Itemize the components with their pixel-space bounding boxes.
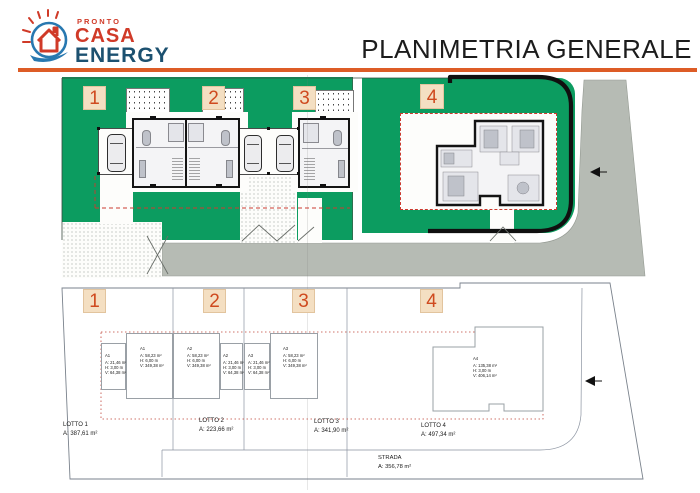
unit-volume: V: 349,38 m² <box>283 363 307 368</box>
lot-area: A: 387,61 m² <box>63 431 97 437</box>
lot-name: LOTTO 4 <box>421 423 446 429</box>
lot-label-3: LOTTO 3 A: 341,90 m² <box>314 418 348 435</box>
lot-area: A: 497,34 m² <box>421 432 455 438</box>
unit-height: H: 3,00 m <box>248 365 266 370</box>
unit-height: H: 3,00 m <box>473 368 491 373</box>
unit-volume: V: 349,38 m² <box>140 363 164 368</box>
unit-box-a1-large: A1 A: 58,23 m² H: 6,00 m V: 349,38 m² <box>126 333 173 399</box>
lot-name: LOTTO 3 <box>314 419 339 425</box>
lot-area: A: 223,66 m² <box>199 427 233 433</box>
lot-name: LOTTO 2 <box>199 418 224 424</box>
unit-box-a2-large: A2 A: 58,23 m² H: 6,00 m V: 349,38 m² <box>173 333 220 399</box>
unit-area: A: 58,23 m² <box>140 353 162 358</box>
site-lot-badge-1: 1 <box>83 86 106 110</box>
lot-name: LOTTO 1 <box>63 422 88 428</box>
unit-id: A4 <box>473 356 497 361</box>
road-label: STRADA A: 356,78 m² <box>378 454 411 471</box>
plan-document: PRONTO CASA ENERGY PLANIMETRIA GENERALE <box>0 0 700 493</box>
unit-box-a3-large: A3 A: 58,23 m² H: 6,00 m V: 349,38 m² <box>270 333 318 399</box>
unit-area: A: 58,23 m² <box>187 353 209 358</box>
unit-height: H: 3,00 m <box>105 365 123 370</box>
unit-volume: V: 64,38 m² <box>223 370 245 375</box>
unit-box-a4-text: A4 A: 135,38 m² H: 3,00 m V: 406,14 m² <box>473 356 497 379</box>
scheme-lot-badge-2: 2 <box>203 289 226 313</box>
unit-id: A2 <box>223 353 242 358</box>
lot-label-4: LOTTO 4 A: 497,34 m² <box>421 422 455 439</box>
unit-box-a1-small: A1 A: 21,46 m² H: 3,00 m V: 64,38 m² <box>101 343 126 390</box>
lot-area: A: 341,90 m² <box>314 428 348 434</box>
unit-id: A3 <box>248 353 269 358</box>
unit-area: A: 135,38 m² <box>473 363 497 368</box>
unit-height: H: 6,00 m <box>187 358 205 363</box>
unit-volume: V: 64,38 m² <box>105 370 127 375</box>
unit-id: A3 <box>283 346 317 351</box>
unit-id: A1 <box>140 346 172 351</box>
scheme-lot-badge-1: 1 <box>83 289 106 313</box>
unit-id: A1 <box>105 353 125 358</box>
site-lot-badge-2: 2 <box>202 86 225 110</box>
scheme-lot-badge-3: 3 <box>292 289 315 313</box>
road-name: STRADA <box>378 455 402 461</box>
site-lot-badge-3: 3 <box>293 86 316 110</box>
unit-height: H: 6,00 m <box>140 358 158 363</box>
unit-area: A: 58,23 m² <box>283 353 305 358</box>
unit-height: H: 3,00 m <box>223 365 241 370</box>
unit-volume: V: 64,38 m² <box>248 370 270 375</box>
unit-volume: V: 349,38 m² <box>187 363 211 368</box>
unit-id: A2 <box>187 346 219 351</box>
lot-label-2: LOTTO 2 A: 223,66 m² <box>199 417 233 434</box>
unit-area: A: 21,46 m² <box>248 360 270 365</box>
unit-volume: V: 406,14 m² <box>473 373 497 378</box>
unit-area: A: 21,46 m² <box>223 360 245 365</box>
scheme-lot-badge-4: 4 <box>420 289 443 313</box>
plan-linework <box>0 0 700 493</box>
unit-area: A: 21,46 m² <box>105 360 127 365</box>
unit-box-a3-small: A3 A: 21,46 m² H: 3,00 m V: 64,38 m² <box>244 343 270 390</box>
unit-height: H: 6,00 m <box>283 358 301 363</box>
site-lot-badge-4: 4 <box>420 84 444 109</box>
lot-label-1: LOTTO 1 A: 387,61 m² <box>63 421 97 438</box>
road-area: A: 356,78 m² <box>378 464 411 470</box>
unit-box-a2-small: A2 A: 21,46 m² H: 3,00 m V: 64,38 m² <box>220 343 243 390</box>
